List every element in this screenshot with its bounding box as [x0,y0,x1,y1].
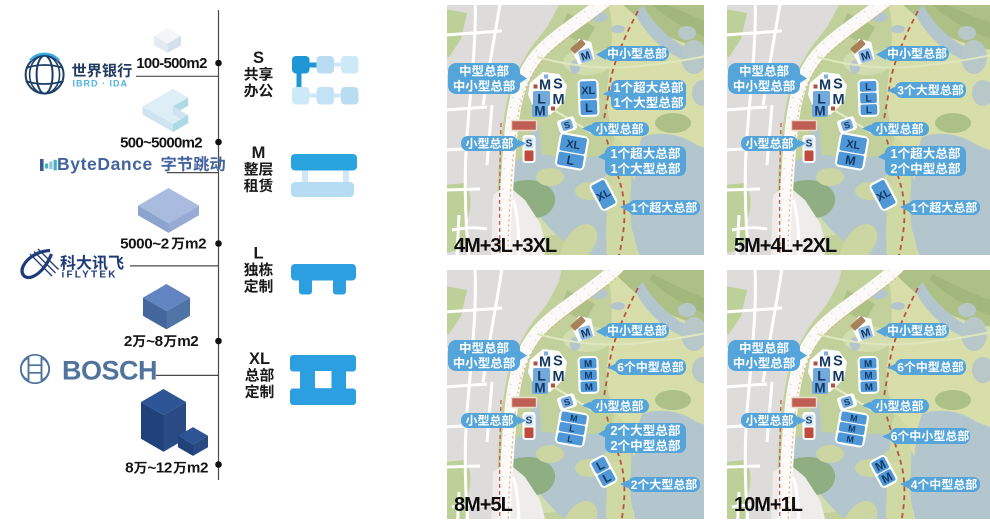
svg-text:M: M [584,359,593,370]
svg-text:XL: XL [565,138,581,152]
svg-text:M: M [814,380,825,395]
svg-text:100-500m2: 100-500m2 [136,55,207,72]
svg-text:6: 6 [891,429,898,443]
svg-text:2: 2 [124,333,132,350]
svg-text:2: 2 [891,162,898,176]
svg-text:L: L [865,93,871,104]
svg-text:m2: m2 [185,235,206,252]
svg-text:m2: m2 [177,333,198,350]
svg-text:M: M [552,92,564,108]
svg-text:1: 1 [891,147,898,161]
svg-text:L: L [865,82,871,93]
svg-text:S: S [253,49,264,67]
svg-text:M: M [252,144,266,162]
svg-text:S: S [553,354,563,370]
svg-text:XL: XL [581,85,596,97]
svg-text:~12: ~12 [147,460,172,477]
svg-text:5M+4L+2XL: 5M+4L+2XL [734,235,837,257]
svg-text:3: 3 [897,83,904,97]
svg-text:1: 1 [611,162,618,176]
svg-text:S: S [553,77,563,93]
svg-text:4M+3L+3XL: 4M+3L+3XL [454,235,557,257]
svg-text:S: S [806,139,813,150]
svg-text:M: M [832,92,844,108]
svg-text:1: 1 [611,147,618,161]
svg-text:XL: XL [845,138,861,152]
svg-text:~8: ~8 [146,333,163,350]
svg-text:6: 6 [897,360,904,374]
svg-text:M: M [865,382,874,393]
svg-text:8: 8 [125,460,133,477]
svg-text:M: M [832,369,844,385]
svg-text:BOSCH: BOSCH [62,356,157,386]
svg-text:2: 2 [611,439,618,453]
svg-text:M: M [534,103,545,118]
svg-text:M: M [534,380,545,395]
svg-text:2: 2 [631,478,638,492]
svg-text:1: 1 [911,201,918,215]
svg-text:S: S [526,416,533,427]
svg-text:10M+1L: 10M+1L [734,494,803,516]
svg-text:2: 2 [611,424,618,438]
svg-text:S: S [833,77,843,93]
svg-text:XL: XL [249,350,270,368]
svg-text:m2: m2 [187,460,208,477]
svg-text:L: L [585,101,593,115]
svg-text:M: M [585,382,594,393]
svg-text:1: 1 [631,201,638,215]
svg-text:M: M [552,369,564,385]
svg-text:M: M [814,103,825,118]
svg-text:S: S [833,354,843,370]
svg-text:5000~2: 5000~2 [120,235,169,252]
svg-text:1: 1 [614,96,621,110]
svg-text:500~5000m2: 500~5000m2 [120,134,202,151]
svg-text:6: 6 [617,360,624,374]
svg-text:ByteDance: ByteDance [57,154,153,174]
svg-text:iFLYTEK: iFLYTEK [62,270,118,281]
svg-text:1: 1 [614,81,621,95]
svg-text:S: S [806,416,813,427]
svg-text:M: M [864,370,873,381]
svg-text:L: L [866,105,872,116]
svg-text:4: 4 [911,478,918,492]
svg-text:8M+5L: 8M+5L [454,494,513,516]
svg-text:M: M [584,370,593,381]
svg-text:S: S [526,139,533,150]
svg-text:IBRD · IDA: IBRD · IDA [73,79,129,89]
svg-text:M: M [864,359,873,370]
svg-text:L: L [253,245,263,263]
